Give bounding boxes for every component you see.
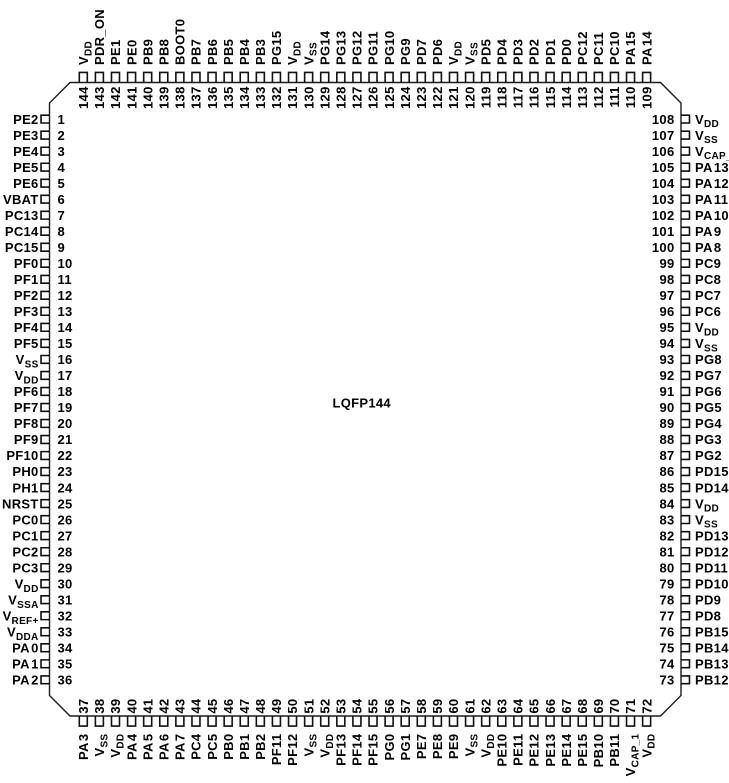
- svg-text:74: 74: [659, 656, 675, 671]
- svg-text:113: 113: [575, 86, 590, 108]
- svg-text:107: 107: [652, 128, 675, 143]
- svg-text:131: 131: [285, 86, 300, 109]
- svg-text:98: 98: [659, 272, 674, 287]
- svg-text:76: 76: [659, 624, 674, 639]
- svg-text:117: 117: [511, 86, 526, 108]
- svg-text:PD9: PD9: [695, 592, 721, 607]
- svg-text:PA12: PA12: [695, 176, 729, 191]
- svg-text:49: 49: [269, 699, 284, 714]
- svg-text:PC14: PC14: [5, 224, 39, 239]
- svg-text:144: 144: [76, 86, 91, 109]
- svg-text:47: 47: [237, 699, 252, 714]
- svg-text:5: 5: [58, 176, 66, 191]
- svg-text:PE2: PE2: [13, 112, 38, 127]
- svg-text:119: 119: [478, 86, 493, 108]
- svg-text:4: 4: [58, 160, 66, 175]
- svg-text:PG11: PG11: [366, 31, 381, 65]
- svg-text:14: 14: [58, 320, 74, 335]
- svg-text:LQFP144: LQFP144: [333, 396, 392, 411]
- svg-text:PC1: PC1: [12, 528, 38, 543]
- svg-text:61: 61: [462, 699, 477, 714]
- svg-text:25: 25: [58, 496, 73, 511]
- svg-text:PD5: PD5: [478, 39, 493, 65]
- svg-text:PD14: PD14: [695, 480, 729, 495]
- svg-text:94: 94: [659, 336, 675, 351]
- svg-text:PC0: PC0: [12, 512, 38, 527]
- svg-text:8: 8: [58, 224, 66, 239]
- svg-text:2: 2: [58, 128, 66, 143]
- svg-text:PF9: PF9: [14, 432, 39, 447]
- svg-text:104: 104: [652, 176, 675, 191]
- svg-text:PD6: PD6: [430, 39, 445, 65]
- svg-text:100: 100: [652, 240, 675, 255]
- svg-text:116: 116: [527, 86, 542, 108]
- svg-text:17: 17: [58, 368, 73, 383]
- svg-text:32: 32: [58, 608, 73, 623]
- svg-text:PA3: PA3: [76, 734, 91, 760]
- svg-text:103: 103: [652, 192, 675, 207]
- svg-text:12: 12: [58, 288, 73, 303]
- svg-text:PF2: PF2: [14, 288, 39, 303]
- svg-text:63: 63: [494, 699, 509, 714]
- svg-text:142: 142: [108, 86, 123, 109]
- svg-text:112: 112: [591, 86, 606, 108]
- svg-text:PC7: PC7: [695, 288, 721, 303]
- svg-text:PF6: PF6: [14, 384, 39, 399]
- svg-text:PB8: PB8: [156, 39, 171, 65]
- svg-text:27: 27: [58, 528, 73, 543]
- svg-text:111: 111: [607, 86, 622, 107]
- svg-text:PE8: PE8: [430, 734, 445, 759]
- svg-text:23: 23: [58, 464, 73, 479]
- svg-text:9: 9: [58, 240, 66, 255]
- svg-text:109: 109: [639, 86, 654, 109]
- svg-text:PE0: PE0: [124, 40, 139, 65]
- svg-text:PF4: PF4: [14, 320, 39, 335]
- svg-text:PE11: PE11: [511, 734, 526, 766]
- svg-text:81: 81: [659, 544, 674, 559]
- svg-text:VBAT: VBAT: [3, 192, 39, 207]
- svg-text:PE14: PE14: [559, 733, 574, 766]
- svg-text:PB1: PB1: [237, 734, 252, 760]
- svg-text:84: 84: [659, 496, 675, 511]
- svg-text:134: 134: [237, 86, 252, 109]
- svg-text:PA5: PA5: [140, 734, 155, 760]
- svg-text:69: 69: [591, 699, 606, 714]
- svg-text:89: 89: [659, 416, 674, 431]
- svg-text:PD12: PD12: [695, 544, 729, 559]
- svg-text:139: 139: [156, 86, 171, 109]
- svg-text:PG1: PG1: [398, 734, 413, 761]
- svg-text:PA4: PA4: [124, 733, 139, 760]
- svg-text:35: 35: [58, 656, 73, 671]
- svg-text:PB15: PB15: [695, 624, 729, 639]
- svg-text:PD0: PD0: [559, 39, 574, 65]
- svg-text:66: 66: [543, 699, 558, 714]
- svg-text:55: 55: [366, 699, 381, 714]
- svg-text:52: 52: [317, 699, 332, 714]
- svg-text:75: 75: [659, 640, 674, 655]
- svg-text:PA13: PA13: [695, 160, 729, 175]
- svg-text:PB3: PB3: [253, 39, 268, 65]
- svg-text:135: 135: [221, 86, 236, 109]
- svg-text:101: 101: [652, 224, 675, 239]
- svg-text:PB10: PB10: [591, 734, 606, 768]
- svg-text:34: 34: [58, 640, 74, 655]
- svg-text:PD13: PD13: [695, 528, 729, 543]
- svg-text:PF11: PF11: [269, 734, 284, 766]
- svg-text:133: 133: [253, 86, 268, 109]
- svg-text:PG8: PG8: [695, 352, 722, 367]
- svg-text:PB11: PB11: [607, 734, 622, 767]
- svg-text:138: 138: [173, 86, 188, 109]
- svg-text:21: 21: [58, 432, 73, 447]
- svg-text:143: 143: [92, 86, 107, 109]
- svg-text:PG15: PG15: [269, 31, 284, 65]
- svg-text:125: 125: [382, 86, 397, 109]
- svg-text:65: 65: [527, 699, 542, 714]
- svg-text:PF12: PF12: [285, 734, 300, 766]
- svg-text:118: 118: [494, 86, 509, 108]
- svg-text:85: 85: [659, 480, 674, 495]
- svg-text:PG10: PG10: [382, 31, 397, 65]
- svg-text:38: 38: [92, 699, 107, 714]
- svg-text:71: 71: [623, 699, 638, 714]
- svg-text:77: 77: [659, 608, 674, 623]
- svg-text:PG9: PG9: [398, 38, 413, 65]
- svg-text:54: 54: [350, 698, 365, 714]
- svg-text:96: 96: [659, 304, 674, 319]
- svg-text:127: 127: [350, 86, 365, 109]
- svg-text:132: 132: [269, 86, 284, 109]
- svg-text:PE5: PE5: [13, 160, 38, 175]
- svg-text:PB0: PB0: [221, 734, 236, 760]
- svg-text:22: 22: [58, 448, 73, 463]
- svg-text:PA6: PA6: [156, 734, 171, 760]
- svg-text:PG2: PG2: [695, 448, 722, 463]
- svg-text:121: 121: [446, 86, 461, 109]
- svg-text:102: 102: [652, 208, 675, 223]
- svg-text:PG12: PG12: [350, 31, 365, 65]
- svg-text:82: 82: [659, 528, 674, 543]
- svg-text:PA9: PA9: [695, 224, 721, 239]
- svg-text:PF5: PF5: [14, 336, 39, 351]
- svg-text:58: 58: [414, 699, 429, 714]
- svg-text:PF14: PF14: [350, 733, 365, 766]
- svg-text:PC9: PC9: [695, 256, 721, 271]
- svg-text:45: 45: [205, 699, 220, 714]
- svg-text:53: 53: [334, 699, 349, 714]
- svg-text:88: 88: [659, 432, 674, 447]
- svg-text:16: 16: [58, 352, 73, 367]
- svg-text:PD1: PD1: [543, 39, 558, 65]
- svg-text:PE13: PE13: [543, 734, 558, 767]
- svg-text:PD10: PD10: [695, 576, 729, 591]
- svg-text:PG5: PG5: [695, 400, 722, 415]
- svg-text:62: 62: [478, 699, 493, 714]
- svg-text:PE4: PE4: [13, 144, 39, 159]
- svg-text:86: 86: [659, 464, 674, 479]
- svg-text:PG7: PG7: [695, 368, 722, 383]
- svg-text:PF0: PF0: [14, 256, 39, 271]
- svg-text:73: 73: [659, 673, 674, 688]
- svg-text:3: 3: [58, 144, 66, 159]
- svg-text:PE9: PE9: [446, 734, 461, 759]
- svg-text:PD2: PD2: [527, 39, 542, 65]
- svg-text:124: 124: [398, 86, 413, 109]
- svg-text:93: 93: [659, 352, 674, 367]
- svg-text:59: 59: [430, 699, 445, 714]
- svg-text:15: 15: [58, 336, 73, 351]
- svg-text:PB9: PB9: [140, 39, 155, 65]
- svg-text:97: 97: [659, 288, 674, 303]
- svg-text:68: 68: [575, 699, 590, 714]
- svg-text:140: 140: [140, 86, 155, 109]
- svg-text:VSSA: VSSA: [8, 592, 38, 610]
- svg-text:29: 29: [58, 560, 73, 575]
- svg-text:37: 37: [76, 699, 91, 714]
- svg-text:56: 56: [382, 699, 397, 714]
- svg-text:PA0: PA0: [12, 640, 38, 655]
- svg-text:114: 114: [559, 86, 574, 108]
- svg-text:PC10: PC10: [607, 31, 622, 65]
- svg-text:PB14: PB14: [695, 640, 729, 655]
- svg-text:BOOT0: BOOT0: [173, 19, 188, 65]
- svg-text:PC11: PC11: [591, 32, 606, 65]
- svg-text:PA15: PA15: [623, 31, 638, 65]
- svg-text:PB13: PB13: [695, 656, 729, 671]
- svg-text:PC13: PC13: [5, 208, 39, 223]
- svg-text:PG3: PG3: [695, 432, 722, 447]
- svg-text:PE12: PE12: [527, 734, 542, 767]
- svg-text:PF8: PF8: [14, 416, 39, 431]
- svg-text:64: 64: [511, 698, 526, 714]
- svg-text:129: 129: [317, 86, 332, 109]
- svg-text:PB2: PB2: [253, 734, 268, 760]
- svg-text:39: 39: [108, 699, 123, 714]
- svg-text:67: 67: [559, 699, 574, 714]
- svg-text:78: 78: [659, 592, 674, 607]
- svg-text:120: 120: [462, 86, 477, 109]
- svg-text:PA8: PA8: [695, 240, 721, 255]
- svg-text:PC2: PC2: [12, 544, 38, 559]
- svg-text:PF13: PF13: [334, 734, 349, 766]
- svg-text:PA1: PA1: [12, 656, 38, 671]
- svg-text:PF10: PF10: [6, 448, 38, 463]
- svg-text:PC3: PC3: [12, 560, 38, 575]
- svg-text:PA7: PA7: [173, 734, 188, 760]
- svg-text:70: 70: [607, 699, 622, 714]
- svg-text:6: 6: [58, 192, 66, 207]
- svg-text:PD8: PD8: [695, 608, 721, 623]
- svg-text:72: 72: [639, 699, 654, 714]
- svg-text:79: 79: [659, 576, 674, 591]
- svg-text:10: 10: [58, 256, 73, 271]
- svg-text:20: 20: [58, 416, 73, 431]
- svg-text:PDR_ON: PDR_ON: [92, 9, 107, 65]
- svg-text:40: 40: [124, 699, 139, 714]
- svg-text:PC6: PC6: [695, 304, 721, 319]
- svg-text:91: 91: [659, 384, 674, 399]
- svg-text:PD4: PD4: [494, 38, 509, 65]
- svg-text:30: 30: [58, 576, 73, 591]
- svg-text:57: 57: [398, 699, 413, 714]
- svg-text:PG4: PG4: [695, 416, 722, 431]
- svg-text:PD15: PD15: [695, 464, 729, 479]
- svg-text:PG13: PG13: [334, 31, 349, 65]
- svg-text:PG14: PG14: [317, 30, 332, 65]
- svg-text:PF3: PF3: [14, 304, 39, 319]
- svg-text:PH0: PH0: [12, 464, 38, 479]
- svg-text:43: 43: [173, 699, 188, 714]
- svg-text:PB6: PB6: [205, 39, 220, 65]
- svg-text:13: 13: [58, 304, 73, 319]
- svg-text:19: 19: [58, 400, 73, 415]
- svg-text:128: 128: [334, 86, 349, 109]
- svg-text:PB4: PB4: [237, 38, 252, 65]
- svg-text:108: 108: [652, 112, 675, 127]
- svg-text:87: 87: [659, 448, 674, 463]
- svg-text:PF7: PF7: [14, 400, 39, 415]
- svg-text:44: 44: [189, 698, 204, 714]
- svg-text:115: 115: [543, 86, 558, 108]
- svg-text:126: 126: [366, 86, 381, 109]
- svg-text:PD11: PD11: [695, 560, 728, 575]
- svg-text:PA2: PA2: [12, 673, 38, 688]
- svg-text:PE6: PE6: [13, 176, 38, 191]
- svg-text:PC5: PC5: [205, 734, 220, 760]
- svg-text:137: 137: [189, 86, 204, 109]
- svg-text:60: 60: [446, 699, 461, 714]
- svg-text:PB7: PB7: [189, 39, 204, 65]
- svg-text:50: 50: [285, 699, 300, 714]
- svg-text:PB12: PB12: [695, 673, 729, 688]
- svg-text:PE7: PE7: [414, 734, 429, 759]
- svg-text:PE15: PE15: [575, 734, 590, 767]
- svg-text:1: 1: [58, 112, 66, 127]
- svg-text:PG0: PG0: [382, 734, 397, 761]
- svg-text:PA10: PA10: [695, 208, 729, 223]
- svg-text:36: 36: [58, 673, 73, 688]
- svg-text:PE3: PE3: [13, 128, 38, 143]
- svg-text:PF1: PF1: [14, 272, 39, 287]
- svg-text:PF15: PF15: [366, 734, 381, 766]
- svg-text:106: 106: [652, 144, 675, 159]
- svg-text:90: 90: [659, 400, 674, 415]
- svg-text:28: 28: [58, 544, 73, 559]
- svg-text:VDD: VDD: [639, 734, 657, 758]
- svg-text:80: 80: [659, 560, 674, 575]
- svg-text:PC12: PC12: [575, 31, 590, 65]
- svg-text:PB5: PB5: [221, 39, 236, 65]
- svg-text:PC4: PC4: [189, 733, 204, 760]
- svg-text:41: 41: [140, 699, 155, 714]
- svg-text:48: 48: [253, 699, 268, 714]
- svg-text:26: 26: [58, 512, 73, 527]
- svg-text:95: 95: [659, 320, 674, 335]
- svg-text:105: 105: [652, 160, 675, 175]
- svg-text:123: 123: [414, 86, 429, 109]
- svg-text:130: 130: [301, 86, 316, 109]
- svg-text:PC8: PC8: [695, 272, 721, 287]
- svg-text:PD3: PD3: [511, 39, 526, 65]
- svg-text:46: 46: [221, 699, 236, 714]
- svg-text:7: 7: [58, 208, 66, 223]
- svg-text:PE10: PE10: [494, 734, 509, 767]
- svg-text:VDD: VDD: [15, 576, 39, 594]
- svg-text:141: 141: [124, 86, 139, 109]
- svg-text:83: 83: [659, 512, 674, 527]
- svg-text:PC15: PC15: [5, 240, 39, 255]
- svg-text:110: 110: [623, 86, 638, 108]
- svg-text:NRST: NRST: [2, 496, 39, 511]
- svg-text:PH1: PH1: [12, 480, 38, 495]
- svg-text:42: 42: [156, 699, 171, 714]
- svg-text:24: 24: [58, 480, 74, 495]
- svg-text:PG6: PG6: [695, 384, 722, 399]
- svg-text:33: 33: [58, 624, 73, 639]
- svg-text:99: 99: [659, 256, 674, 271]
- svg-text:PD7: PD7: [414, 39, 429, 65]
- svg-text:51: 51: [301, 699, 316, 714]
- svg-text:11: 11: [58, 272, 72, 287]
- svg-text:122: 122: [430, 86, 445, 109]
- svg-text:PE1: PE1: [108, 40, 123, 65]
- svg-text:PA14: PA14: [639, 31, 654, 65]
- svg-text:136: 136: [205, 86, 220, 109]
- svg-text:92: 92: [659, 368, 674, 383]
- svg-text:31: 31: [58, 592, 73, 607]
- svg-text:18: 18: [58, 384, 73, 399]
- svg-text:PA11: PA11: [695, 192, 728, 207]
